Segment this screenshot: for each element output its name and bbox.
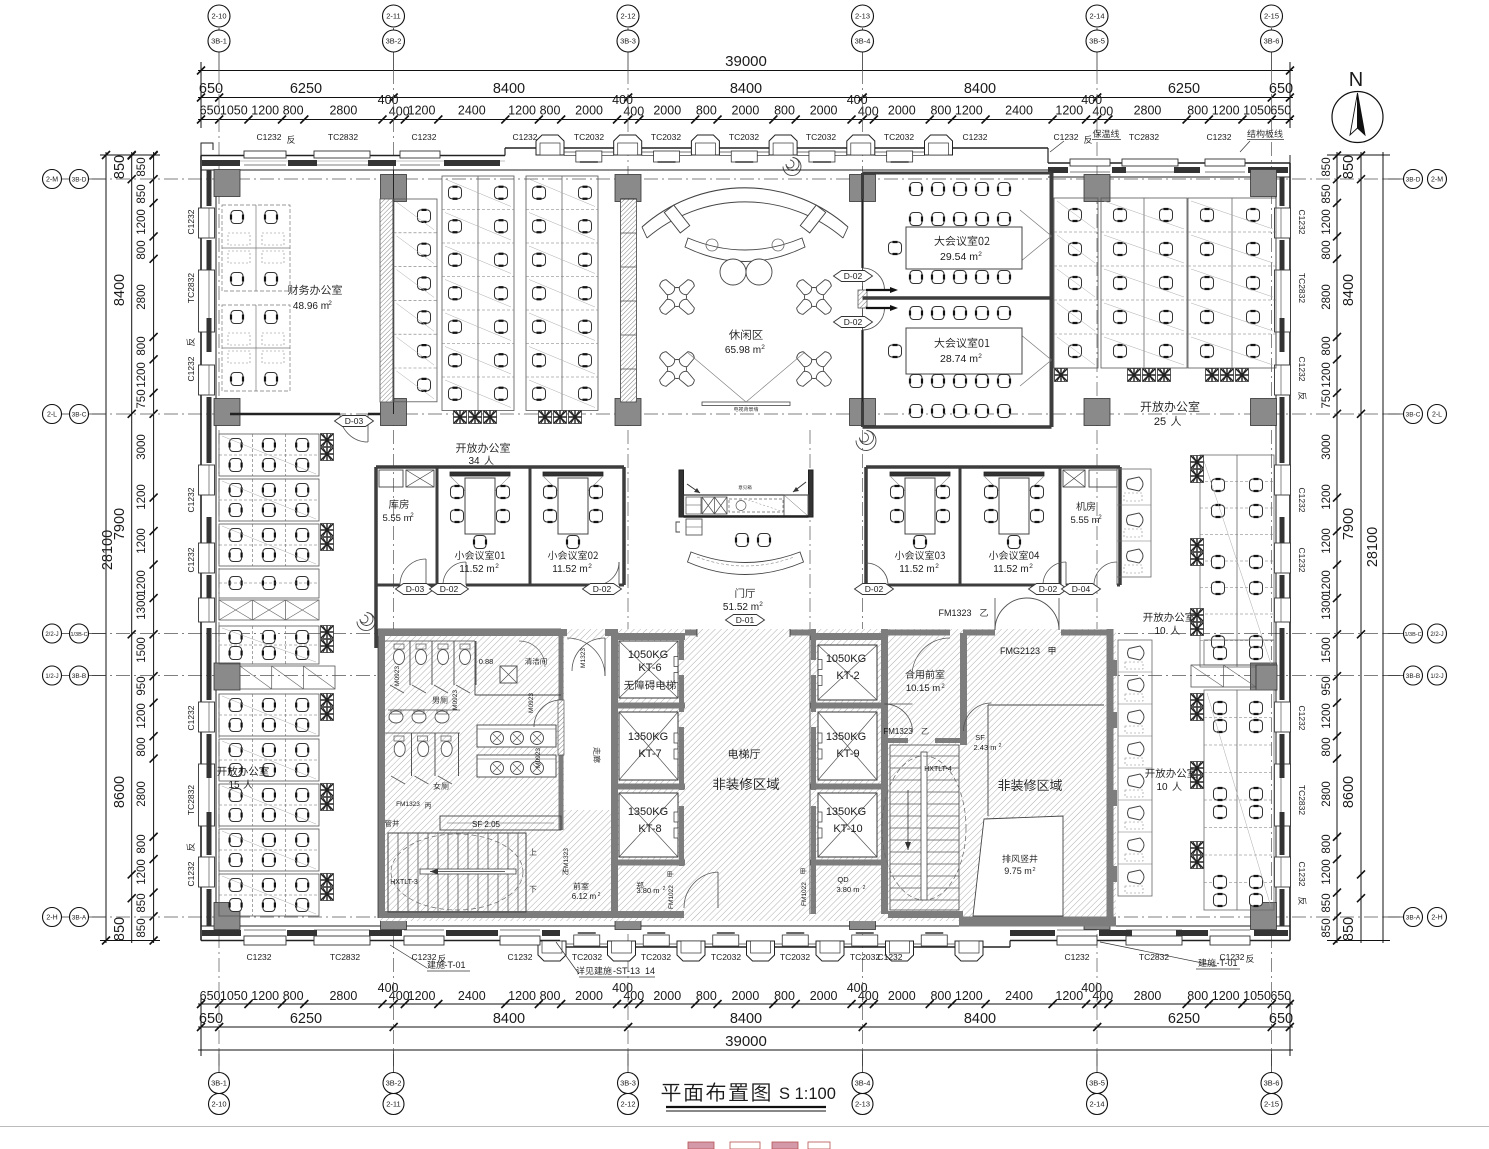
svg-text:2800: 2800	[136, 284, 148, 310]
svg-text:KT-8: KT-8	[638, 823, 661, 835]
svg-text:1050: 1050	[220, 989, 248, 1003]
svg-text:1200: 1200	[136, 484, 148, 510]
svg-text:1200: 1200	[136, 570, 148, 596]
svg-text:28.74 m: 28.74 m	[940, 353, 978, 365]
svg-text:8600: 8600	[1341, 776, 1357, 808]
svg-text:1350KG: 1350KG	[628, 731, 668, 743]
svg-text:2: 2	[495, 563, 499, 570]
svg-text:1300: 1300	[1321, 594, 1333, 620]
svg-text:C1232: C1232	[1064, 952, 1089, 962]
svg-text:39000: 39000	[725, 1033, 767, 1050]
svg-text:2-L: 2-L	[47, 412, 57, 419]
svg-text:2000: 2000	[575, 989, 603, 1003]
svg-text:3B-2: 3B-2	[386, 1079, 402, 1088]
svg-text:2-10: 2-10	[211, 12, 226, 21]
svg-text:3B-B: 3B-B	[1406, 673, 1420, 680]
svg-text:D-02: D-02	[844, 317, 863, 327]
svg-text:-T-01: -T-01	[1216, 958, 1237, 968]
svg-text:TC2032: TC2032	[884, 132, 915, 142]
svg-text:11.52 m: 11.52 m	[552, 564, 587, 575]
svg-text:C1232: C1232	[507, 952, 532, 962]
svg-text:D-02: D-02	[1039, 584, 1058, 594]
svg-text:1200: 1200	[1321, 528, 1333, 554]
svg-text:28100: 28100	[1365, 527, 1381, 567]
svg-text:HXTLT-4: HXTLT-4	[924, 766, 952, 773]
svg-text:650: 650	[200, 989, 221, 1003]
svg-text:10.15 m: 10.15 m	[906, 683, 940, 694]
svg-text:2-H: 2-H	[1431, 915, 1442, 922]
svg-text:TC2832: TC2832	[1297, 785, 1307, 816]
svg-text:1050KG: 1050KG	[628, 649, 668, 661]
svg-text:1200: 1200	[1055, 989, 1083, 1003]
svg-text:7900: 7900	[112, 508, 128, 540]
svg-text:1500: 1500	[136, 637, 148, 663]
svg-text:KT-7: KT-7	[638, 748, 661, 760]
svg-text:S 1:100: S 1:100	[779, 1085, 836, 1103]
svg-text:2-14: 2-14	[1089, 1100, 1104, 1109]
svg-text:2800: 2800	[1321, 781, 1333, 807]
svg-text:2000: 2000	[810, 104, 838, 118]
svg-text:2: 2	[328, 300, 332, 307]
svg-text:750: 750	[136, 389, 148, 408]
svg-text:1050: 1050	[1243, 104, 1271, 118]
svg-text:TC2832: TC2832	[186, 785, 196, 816]
svg-text:TC2032: TC2032	[651, 132, 682, 142]
svg-text:2-15: 2-15	[1264, 12, 1279, 21]
svg-text:1200: 1200	[251, 989, 279, 1003]
svg-text:2000: 2000	[575, 104, 603, 118]
svg-text:650: 650	[200, 104, 221, 118]
svg-text:2: 2	[1029, 563, 1033, 570]
svg-text:5.55 m: 5.55 m	[1070, 515, 1099, 526]
svg-text:3.80 m: 3.80 m	[837, 885, 860, 894]
svg-text:1050KG: 1050KG	[826, 653, 866, 665]
svg-text:3B-D: 3B-D	[72, 177, 87, 184]
svg-text:KT-2: KT-2	[836, 670, 859, 682]
svg-text:3B-6: 3B-6	[1264, 37, 1280, 46]
svg-text:D-01: D-01	[736, 615, 755, 625]
svg-text:TC2832: TC2832	[1297, 273, 1307, 304]
svg-text:1200: 1200	[251, 104, 279, 118]
svg-text:2400: 2400	[458, 989, 486, 1003]
svg-text:400: 400	[389, 105, 410, 119]
svg-text:3B-4: 3B-4	[855, 1079, 871, 1088]
svg-text:850: 850	[1321, 918, 1333, 937]
svg-text:650: 650	[1270, 989, 1291, 1003]
svg-text:6250: 6250	[290, 1011, 322, 1027]
svg-text:2/2-J: 2/2-J	[45, 632, 58, 638]
svg-text:1200: 1200	[136, 362, 148, 388]
svg-text:0.88: 0.88	[479, 657, 494, 666]
svg-text:11.52 m: 11.52 m	[459, 564, 494, 575]
svg-text:8400: 8400	[1341, 274, 1357, 306]
svg-text:1200: 1200	[955, 989, 983, 1003]
svg-text:1500: 1500	[1321, 637, 1333, 663]
svg-text:2-12: 2-12	[620, 1100, 635, 1109]
svg-text:D-04: D-04	[1072, 584, 1091, 594]
svg-text:C1232: C1232	[1297, 547, 1307, 572]
svg-text:C1232: C1232	[1297, 209, 1307, 234]
svg-text:1200: 1200	[1321, 859, 1333, 885]
svg-text:2-15: 2-15	[1264, 1100, 1279, 1109]
svg-text:1/2-J: 1/2-J	[1430, 674, 1443, 680]
svg-text:650: 650	[1269, 81, 1293, 97]
svg-text:1200: 1200	[1321, 484, 1333, 510]
svg-text:8400: 8400	[730, 1011, 762, 1027]
svg-text:1200: 1200	[1321, 209, 1333, 235]
svg-text:2800: 2800	[329, 104, 357, 118]
svg-text:800: 800	[1321, 834, 1333, 853]
svg-text:FM1323: FM1323	[563, 848, 570, 872]
svg-text:D-02: D-02	[593, 584, 612, 594]
svg-text:400: 400	[389, 989, 410, 1003]
svg-text:-ST-13: -ST-13	[613, 966, 640, 976]
svg-text:1300: 1300	[136, 594, 148, 620]
svg-text:8400: 8400	[964, 1011, 996, 1027]
svg-text:D-02: D-02	[865, 584, 884, 594]
svg-text:14: 14	[645, 966, 655, 976]
svg-text:C1232: C1232	[246, 952, 271, 962]
svg-text:2: 2	[588, 563, 592, 570]
svg-text:N: N	[1349, 69, 1363, 91]
svg-text:TC2832: TC2832	[186, 273, 196, 304]
svg-text:2000: 2000	[732, 104, 760, 118]
svg-text:2-L: 2-L	[1432, 412, 1442, 419]
svg-text:6250: 6250	[290, 81, 322, 97]
svg-text:2400: 2400	[458, 104, 486, 118]
svg-text:2: 2	[999, 743, 1002, 749]
svg-text:2-M: 2-M	[46, 177, 58, 184]
svg-text:1200: 1200	[408, 989, 436, 1003]
svg-text:400: 400	[1092, 105, 1113, 119]
svg-text:1350KG: 1350KG	[826, 806, 866, 818]
svg-text:TC2032: TC2032	[641, 952, 672, 962]
svg-text:KT-9: KT-9	[836, 748, 859, 760]
svg-text:2800: 2800	[1134, 989, 1162, 1003]
svg-text:3B-6: 3B-6	[1264, 1079, 1280, 1088]
svg-text:8400: 8400	[964, 81, 996, 97]
svg-text:TC2832: TC2832	[1139, 952, 1170, 962]
svg-text:2: 2	[598, 892, 601, 898]
svg-text:15: 15	[228, 780, 240, 791]
svg-text:8400: 8400	[112, 274, 128, 306]
svg-text:2-H: 2-H	[46, 915, 57, 922]
svg-text:2: 2	[978, 353, 982, 360]
svg-text:400: 400	[623, 989, 644, 1003]
svg-text:2-12: 2-12	[620, 12, 635, 21]
svg-text:3B-4: 3B-4	[855, 37, 871, 46]
svg-text:3B-3: 3B-3	[620, 37, 636, 46]
svg-text:800: 800	[136, 240, 148, 259]
svg-text:TC2832: TC2832	[1129, 132, 1160, 142]
svg-text:3B-A: 3B-A	[72, 915, 87, 922]
svg-text:TC2032: TC2032	[572, 952, 603, 962]
svg-text:2400: 2400	[1005, 104, 1033, 118]
svg-text:2000: 2000	[653, 989, 681, 1003]
svg-text:3000: 3000	[1321, 434, 1333, 460]
svg-text:10: 10	[1154, 626, 1166, 637]
svg-text:FM1323: FM1323	[396, 801, 420, 808]
svg-text:2800: 2800	[329, 989, 357, 1003]
svg-text:800: 800	[1321, 240, 1333, 259]
svg-text:C1232: C1232	[512, 132, 537, 142]
svg-text:5.55 m: 5.55 m	[382, 513, 411, 524]
svg-text:3B-3: 3B-3	[620, 1079, 636, 1088]
svg-text:SF: SF	[975, 733, 985, 742]
svg-text:2-14: 2-14	[1089, 12, 1104, 21]
svg-text:FM1323: FM1323	[938, 608, 971, 618]
svg-text:1350KG: 1350KG	[628, 806, 668, 818]
svg-text:3B-D: 3B-D	[1406, 177, 1421, 184]
svg-text:400: 400	[858, 105, 879, 119]
svg-text:FMG2123: FMG2123	[1000, 646, 1040, 656]
svg-text:1200: 1200	[1055, 104, 1083, 118]
svg-text:850: 850	[136, 184, 148, 203]
svg-text:KT-10: KT-10	[833, 823, 862, 835]
svg-text:950: 950	[1321, 676, 1333, 695]
svg-text:2.43 m: 2.43 m	[974, 743, 997, 752]
svg-text:850: 850	[1321, 157, 1333, 176]
svg-text:M0923: M0923	[452, 690, 459, 710]
svg-text:850: 850	[112, 917, 128, 941]
svg-text:2800: 2800	[1134, 104, 1162, 118]
svg-text:800: 800	[136, 834, 148, 853]
svg-text:2-11: 2-11	[386, 12, 400, 21]
svg-text:400: 400	[623, 105, 644, 119]
svg-text:1200: 1200	[1321, 362, 1333, 388]
svg-text:3B-5: 3B-5	[1089, 37, 1105, 46]
svg-text:850: 850	[1321, 184, 1333, 203]
svg-text:1200: 1200	[955, 104, 983, 118]
svg-text:TC2032: TC2032	[850, 952, 881, 962]
svg-text:850: 850	[1321, 893, 1333, 912]
svg-text:400: 400	[1092, 989, 1113, 1003]
svg-text:-T-01: -T-01	[444, 960, 465, 970]
svg-text:6.12 m: 6.12 m	[572, 892, 597, 901]
svg-text:6250: 6250	[1168, 1011, 1200, 1027]
svg-text:M1323: M1323	[580, 648, 587, 668]
svg-text:KT-6: KT-6	[638, 662, 661, 674]
svg-text:C1232: C1232	[1053, 132, 1078, 142]
svg-text:8400: 8400	[730, 81, 762, 97]
svg-text:C1232: C1232	[411, 132, 436, 142]
svg-text:1200: 1200	[136, 859, 148, 885]
svg-text:M0923: M0923	[528, 693, 535, 713]
svg-text:800: 800	[136, 336, 148, 355]
svg-text:850: 850	[136, 893, 148, 912]
svg-text:1200: 1200	[136, 209, 148, 235]
svg-text:1200: 1200	[508, 104, 536, 118]
svg-text:3B-1: 3B-1	[211, 1079, 227, 1088]
svg-text:C1232: C1232	[877, 952, 902, 962]
svg-text:2000: 2000	[732, 989, 760, 1003]
svg-text:25: 25	[1154, 416, 1166, 428]
svg-text:650: 650	[199, 81, 223, 97]
svg-text:8600: 8600	[112, 776, 128, 808]
svg-text:1/3B-C: 1/3B-C	[70, 632, 87, 638]
svg-text:850: 850	[136, 157, 148, 176]
svg-text:850: 850	[1341, 917, 1357, 941]
svg-text:1200: 1200	[136, 528, 148, 554]
svg-text:D-02: D-02	[844, 271, 863, 281]
svg-text:C1232: C1232	[186, 209, 196, 234]
svg-text:2-13: 2-13	[855, 12, 870, 21]
svg-text:1/3B-C: 1/3B-C	[1404, 632, 1421, 638]
svg-text:7900: 7900	[1341, 508, 1357, 540]
svg-text:2: 2	[863, 885, 866, 891]
svg-text:2-11: 2-11	[386, 1100, 400, 1109]
svg-text:1200: 1200	[136, 703, 148, 729]
svg-text:1350KG: 1350KG	[826, 731, 866, 743]
svg-text:9.75 m: 9.75 m	[1004, 866, 1032, 876]
svg-text:FM1323: FM1323	[883, 727, 913, 736]
svg-text:TC2032: TC2032	[574, 132, 605, 142]
svg-text:51.52 m: 51.52 m	[723, 602, 759, 613]
svg-text:1050: 1050	[220, 104, 248, 118]
svg-text:11.52 m: 11.52 m	[993, 564, 1028, 575]
svg-text:8400: 8400	[493, 81, 525, 97]
svg-text:2: 2	[663, 886, 666, 892]
svg-text:2: 2	[761, 344, 765, 351]
svg-text:3B-C: 3B-C	[72, 412, 87, 419]
svg-text:C1232: C1232	[1297, 705, 1307, 730]
svg-text:C1232: C1232	[186, 861, 196, 886]
svg-text:TC2832: TC2832	[330, 952, 361, 962]
svg-text:D-03: D-03	[406, 584, 425, 594]
svg-text:850: 850	[112, 155, 128, 179]
svg-text:8400: 8400	[493, 1011, 525, 1027]
svg-text:1200: 1200	[508, 989, 536, 1003]
svg-text:1050: 1050	[1243, 989, 1271, 1003]
svg-text:650: 650	[1270, 104, 1291, 118]
svg-text:2: 2	[978, 251, 982, 258]
svg-text:FM1022: FM1022	[801, 882, 808, 906]
svg-text:850: 850	[1341, 155, 1357, 179]
svg-text:2000: 2000	[653, 104, 681, 118]
svg-text:29.54 m: 29.54 m	[940, 251, 978, 263]
svg-text:C1232: C1232	[186, 487, 196, 512]
svg-text:650: 650	[1269, 1011, 1293, 1027]
svg-text:D-02: D-02	[440, 584, 459, 594]
svg-text:3000: 3000	[136, 434, 148, 460]
svg-text:FM1022: FM1022	[668, 885, 675, 909]
svg-text:TC2832: TC2832	[328, 132, 359, 142]
svg-text:3B-1: 3B-1	[211, 37, 227, 46]
svg-text:QD: QD	[837, 875, 849, 884]
svg-text:M0923: M0923	[535, 748, 542, 768]
svg-text:48.96 m: 48.96 m	[293, 301, 329, 312]
svg-text:800: 800	[1321, 737, 1333, 756]
svg-text:65.98 m: 65.98 m	[725, 345, 761, 356]
svg-text:SF 2.05: SF 2.05	[472, 820, 501, 829]
svg-text:D-03: D-03	[345, 416, 364, 426]
svg-text:C1232: C1232	[1297, 487, 1307, 512]
svg-text:11.52 m: 11.52 m	[899, 564, 934, 575]
svg-text:800: 800	[1321, 336, 1333, 355]
svg-text:C1232: C1232	[1297, 861, 1307, 886]
svg-text:C1232: C1232	[186, 547, 196, 572]
svg-text:850: 850	[136, 918, 148, 937]
svg-text:C1232: C1232	[1206, 132, 1231, 142]
svg-text:6250: 6250	[1168, 81, 1200, 97]
svg-text:2-M: 2-M	[1431, 177, 1443, 184]
svg-text:TC2032: TC2032	[806, 132, 837, 142]
svg-text:HXTLT-3: HXTLT-3	[390, 879, 418, 886]
svg-text:TC2032: TC2032	[711, 952, 742, 962]
svg-text:1200: 1200	[1212, 104, 1240, 118]
svg-text:M0923: M0923	[394, 666, 401, 686]
svg-text:3B-5: 3B-5	[1089, 1079, 1105, 1088]
svg-text:950: 950	[136, 676, 148, 695]
svg-text:2: 2	[935, 563, 939, 570]
svg-text:C1232: C1232	[256, 132, 281, 142]
svg-text:750: 750	[1321, 389, 1333, 408]
svg-text:1200: 1200	[408, 104, 436, 118]
svg-text:2: 2	[1032, 867, 1035, 873]
svg-text:2-10: 2-10	[211, 1100, 226, 1109]
svg-text:C1232: C1232	[186, 705, 196, 730]
svg-text:C1232: C1232	[186, 356, 196, 381]
svg-text:10: 10	[1156, 782, 1168, 793]
svg-text:3B-C: 3B-C	[1406, 412, 1421, 419]
svg-text:2-13: 2-13	[855, 1100, 870, 1109]
svg-text:2000: 2000	[888, 989, 916, 1003]
svg-text:3B-2: 3B-2	[386, 37, 402, 46]
svg-text:TC2032: TC2032	[780, 952, 811, 962]
svg-text:3B-A: 3B-A	[1406, 915, 1421, 922]
svg-text:2000: 2000	[888, 104, 916, 118]
svg-text:2800: 2800	[136, 781, 148, 807]
svg-text:39000: 39000	[725, 53, 767, 70]
svg-text:2400: 2400	[1005, 989, 1033, 1003]
svg-text:3B-B: 3B-B	[72, 673, 86, 680]
svg-text:C1232: C1232	[962, 132, 987, 142]
svg-text:TC2032: TC2032	[729, 132, 760, 142]
svg-text:400: 400	[858, 989, 879, 1003]
svg-text:2000: 2000	[810, 989, 838, 1003]
svg-text:C1232: C1232	[1297, 356, 1307, 381]
svg-text:2800: 2800	[1321, 284, 1333, 310]
svg-text:1200: 1200	[1321, 570, 1333, 596]
svg-text:1200: 1200	[1212, 989, 1240, 1003]
svg-text:2: 2	[759, 601, 763, 608]
svg-text:800: 800	[136, 737, 148, 756]
svg-text:1200: 1200	[1321, 703, 1333, 729]
svg-text:2/2-J: 2/2-J	[1430, 632, 1443, 638]
svg-text:1/2-J: 1/2-J	[45, 674, 58, 680]
